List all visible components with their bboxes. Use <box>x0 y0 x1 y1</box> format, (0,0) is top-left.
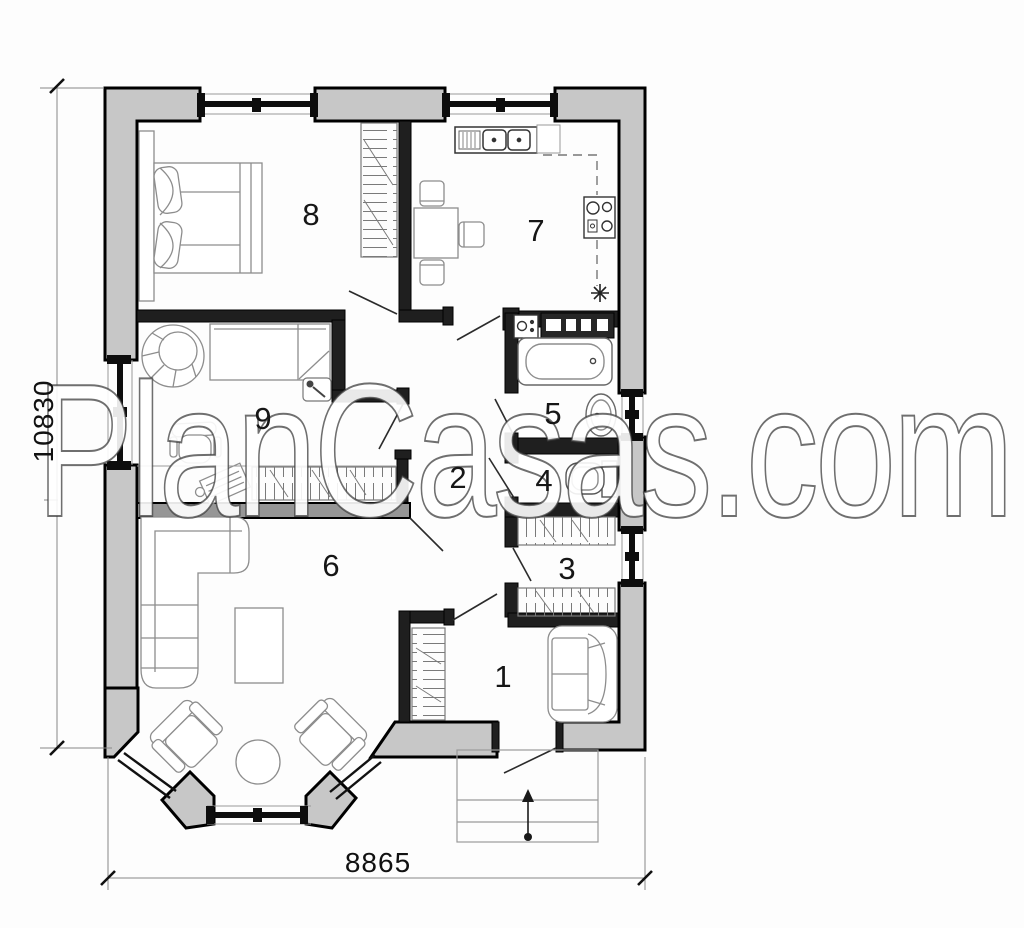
double-bed <box>139 131 262 301</box>
wall-room8-room9 <box>137 310 345 322</box>
floor-plan-page: PlanCasas.com 1 2 3 4 5 6 7 8 9 8865 108… <box>0 0 1024 928</box>
wall-bottom-left-of-door <box>371 722 497 757</box>
room-label-3: 3 <box>558 551 575 587</box>
door-entrance <box>504 748 556 773</box>
room-label-7: 7 <box>527 213 544 249</box>
kitchen-sink <box>455 127 537 153</box>
bay-pier-left <box>105 688 138 757</box>
stove <box>584 197 615 238</box>
dimension-width-label: 8865 <box>345 847 411 879</box>
bay-pier-se <box>306 772 356 828</box>
dimension-height-label: 10830 <box>28 380 60 463</box>
room-label-6: 6 <box>322 548 339 584</box>
door-room1 <box>453 594 497 620</box>
kitchen-counter-dashed <box>543 155 597 195</box>
wall-kitchen-stub <box>399 310 450 322</box>
window-bay-bottom <box>206 806 311 824</box>
room-label-2: 2 <box>449 460 466 496</box>
wardrobe-room3-bottom <box>518 588 615 616</box>
room-label-5: 5 <box>544 396 561 432</box>
wall-top-middle <box>315 88 445 121</box>
bath-shelf <box>541 313 614 338</box>
room-label-9: 9 <box>254 401 271 437</box>
wall-room3-post <box>505 583 518 617</box>
armchair-right <box>289 693 372 776</box>
kitchen-counter-corner <box>537 125 560 153</box>
fridge-icon <box>591 284 609 302</box>
room-label-8: 8 <box>302 197 319 233</box>
closet-room1 <box>412 628 445 720</box>
door-jamb <box>556 722 563 752</box>
coffee-table <box>236 740 280 784</box>
washing-machine <box>514 315 538 338</box>
window-top-2 <box>442 93 558 117</box>
wall-closet1-west <box>399 611 410 722</box>
room-label-1: 1 <box>494 659 511 695</box>
wall-kitchen-divider <box>399 121 411 312</box>
wall-cap <box>444 609 454 625</box>
wall-cap <box>443 307 453 325</box>
living-table <box>235 608 283 683</box>
door-kitchen <box>457 316 500 340</box>
entry-arrow-icon <box>522 789 534 841</box>
wardrobe-room8 <box>361 123 397 257</box>
watermark: PlanCasas.com <box>36 356 1010 546</box>
hall-sofa <box>548 626 617 722</box>
door-room8 <box>349 291 397 314</box>
kitchen-table-set <box>414 181 484 285</box>
entrance-porch <box>457 750 598 842</box>
door-jamb <box>492 722 499 752</box>
room-label-4: 4 <box>535 463 552 499</box>
window-top-1 <box>197 93 318 117</box>
armchair-left <box>145 695 228 778</box>
